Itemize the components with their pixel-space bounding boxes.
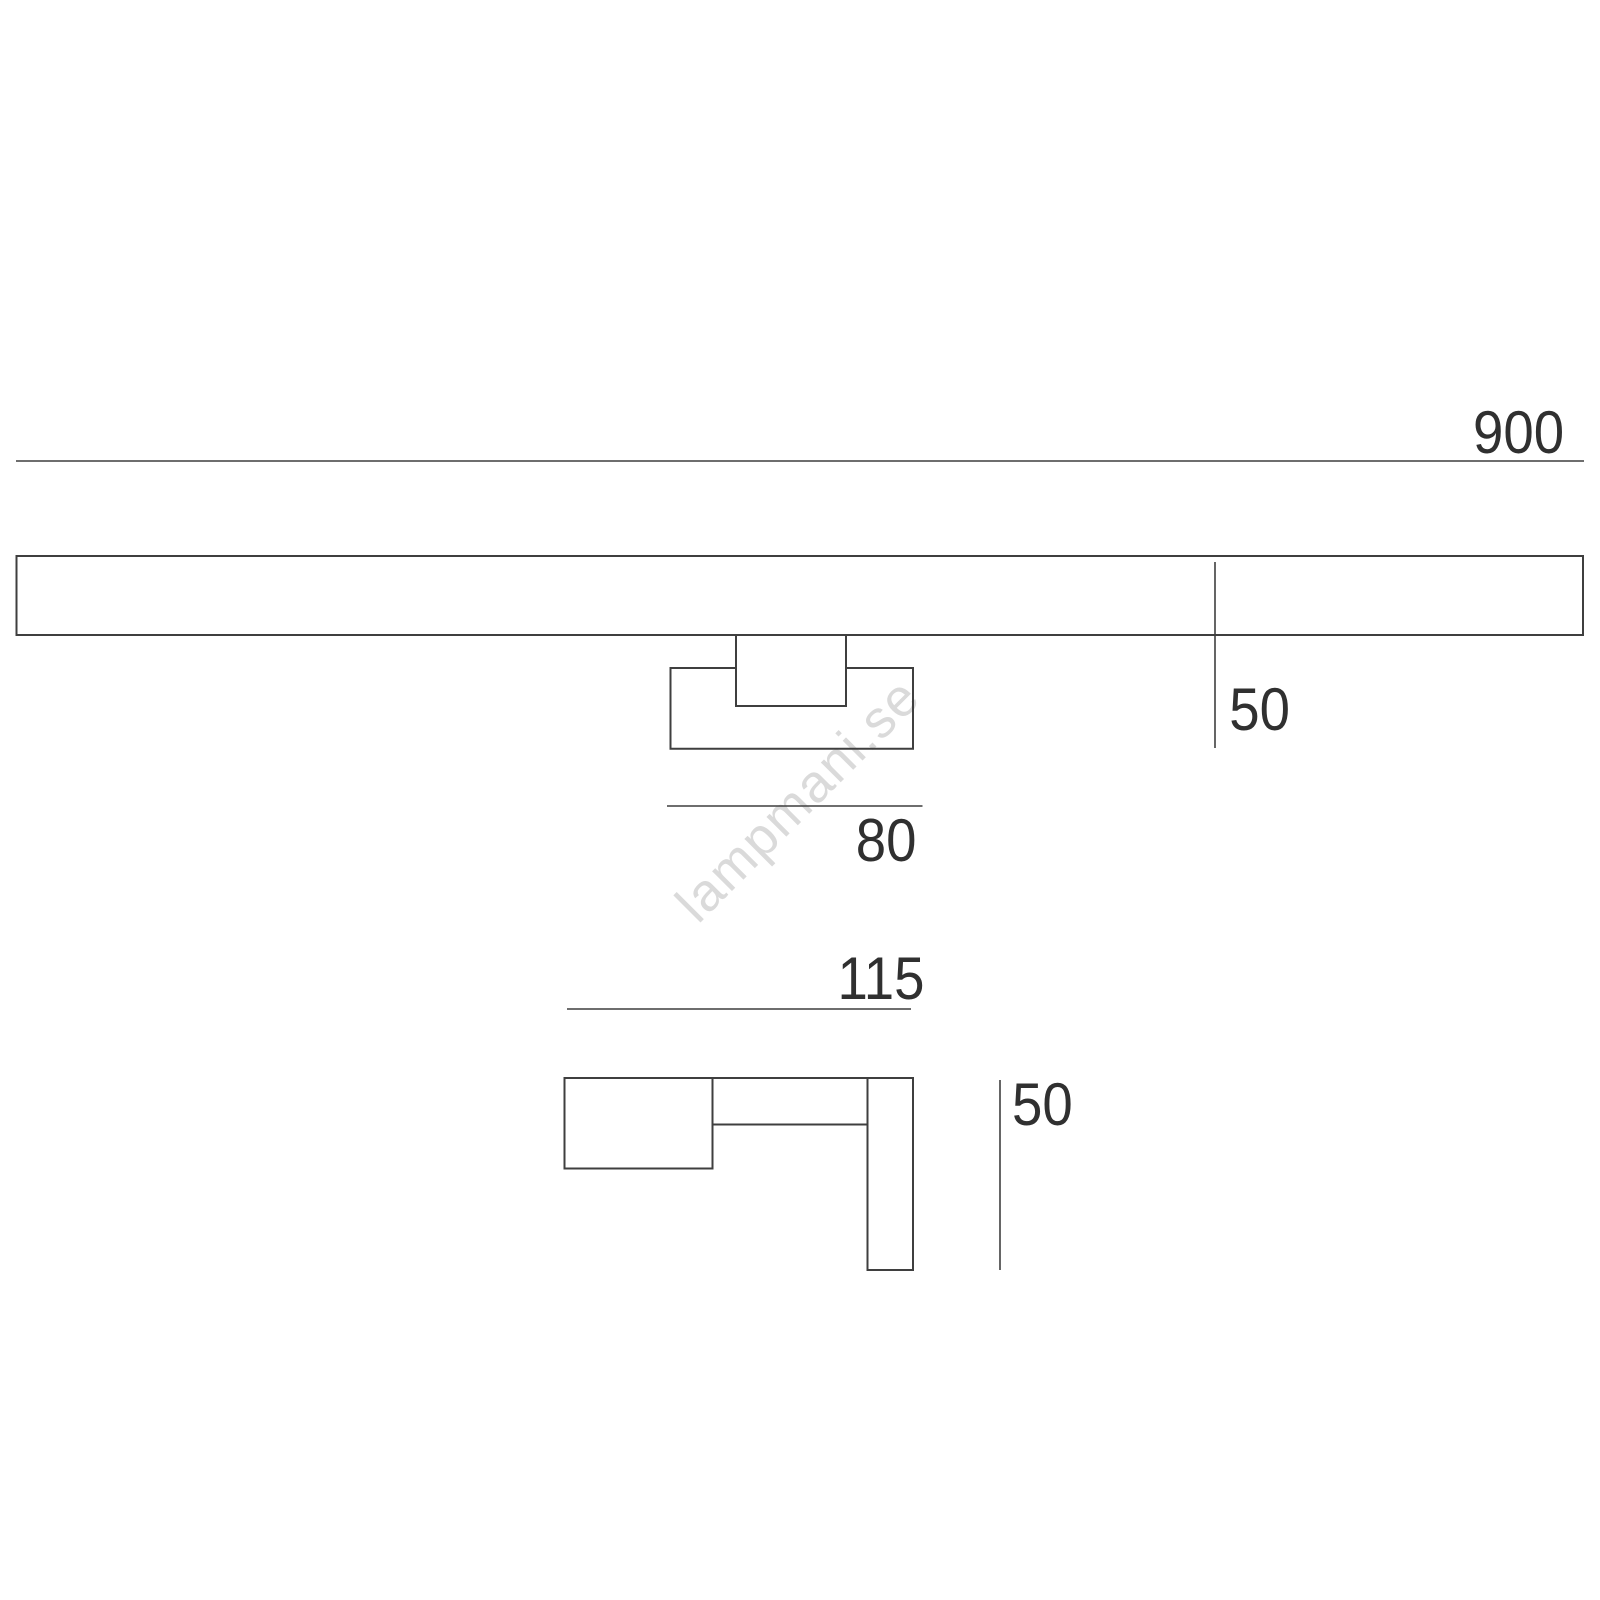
svg-text:115: 115 — [838, 946, 925, 1013]
svg-text:900: 900 — [1473, 400, 1564, 467]
svg-text:80: 80 — [856, 808, 917, 875]
svg-text:50: 50 — [1012, 1072, 1073, 1139]
svg-text:50: 50 — [1229, 677, 1290, 744]
